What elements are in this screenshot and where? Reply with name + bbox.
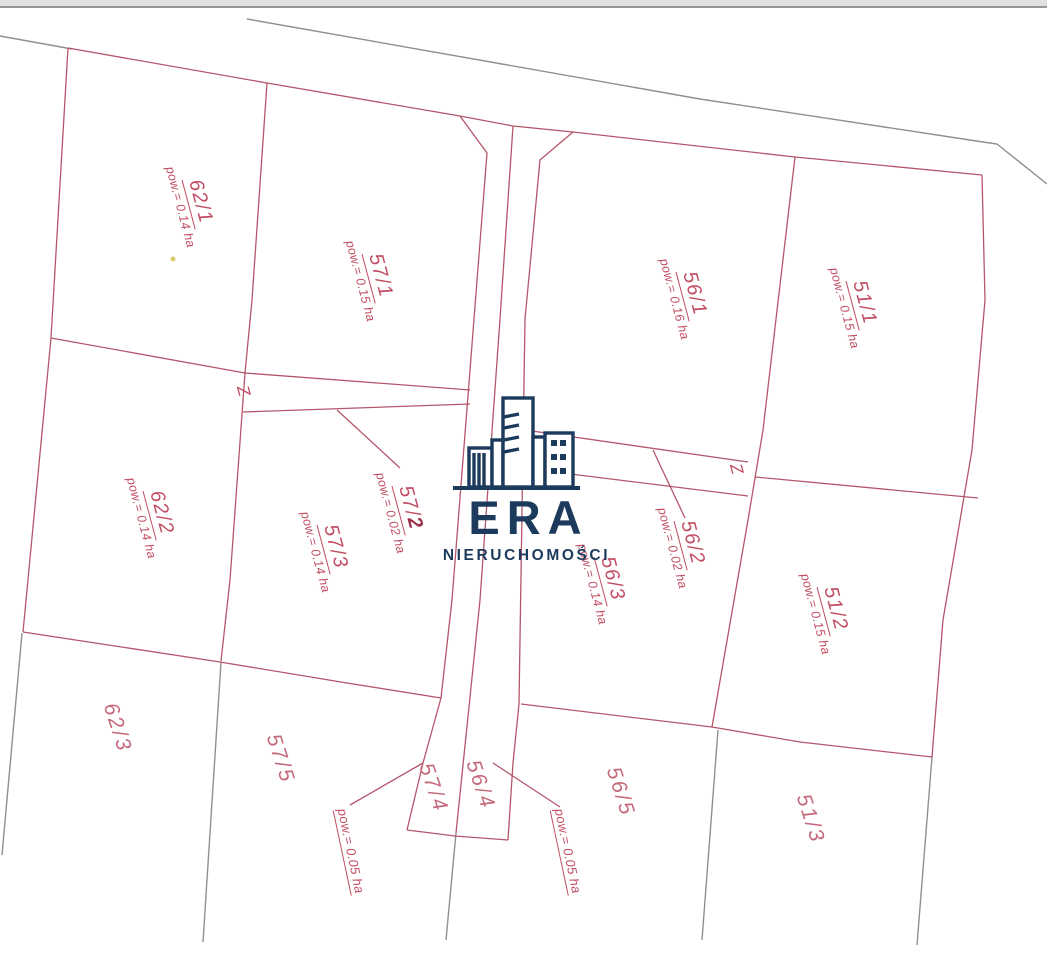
cadastral-map-scan: 62/1pow.= 0.14 ha57/1pow.= 0.15 ha56/1po… [0,0,1047,960]
parcel-label-62-3: 62/3 [99,700,136,755]
parcel-label-51-3: 51/3 [792,791,829,846]
parcel-label-51-1: 51/1pow.= 0.15 ha [827,260,885,350]
era-buildings-icon [438,390,612,492]
area-label-pow-57-4: pow.= 0.05 ha [335,807,368,895]
survey-mark-z-west: Z [232,383,254,398]
parcel-label-57-3: 57/3pow.= 0.14 ha [298,504,356,594]
parcel-label-62-1: 62/1pow.= 0.14 ha [163,159,221,249]
survey-mark-z-east: Z [725,461,747,476]
era-logo-text: ERA [438,494,612,541]
parcel-label-56-5: 56/5 [602,764,639,819]
parcel-label-56-1: 56/1pow.= 0.16 ha [657,251,715,341]
parcel-label-57-4: 57/4 [414,760,451,815]
era-logo-subtitle: NIERUCHOMOŚCI [438,547,612,565]
parcel-label-57-5: 57/5 [262,731,299,786]
parcel-label-57-2: 57/2pow.= 0.02 ha [373,465,431,555]
area-label-pow-56-4: pow.= 0.05 ha [552,807,585,895]
parcel-label-56-2: 56/2pow.= 0.02 ha [655,500,713,590]
parcel-label-62-2: 62/2pow.= 0.14 ha [124,470,182,560]
parcel-label-57-1: 57/1pow.= 0.15 ha [343,233,401,323]
era-logo: ERA NIERUCHOMOŚCI [438,390,612,565]
parcel-label-56-4: 56/4 [461,757,498,812]
parcel-label-51-2: 51/2pow.= 0.15 ha [798,566,856,656]
